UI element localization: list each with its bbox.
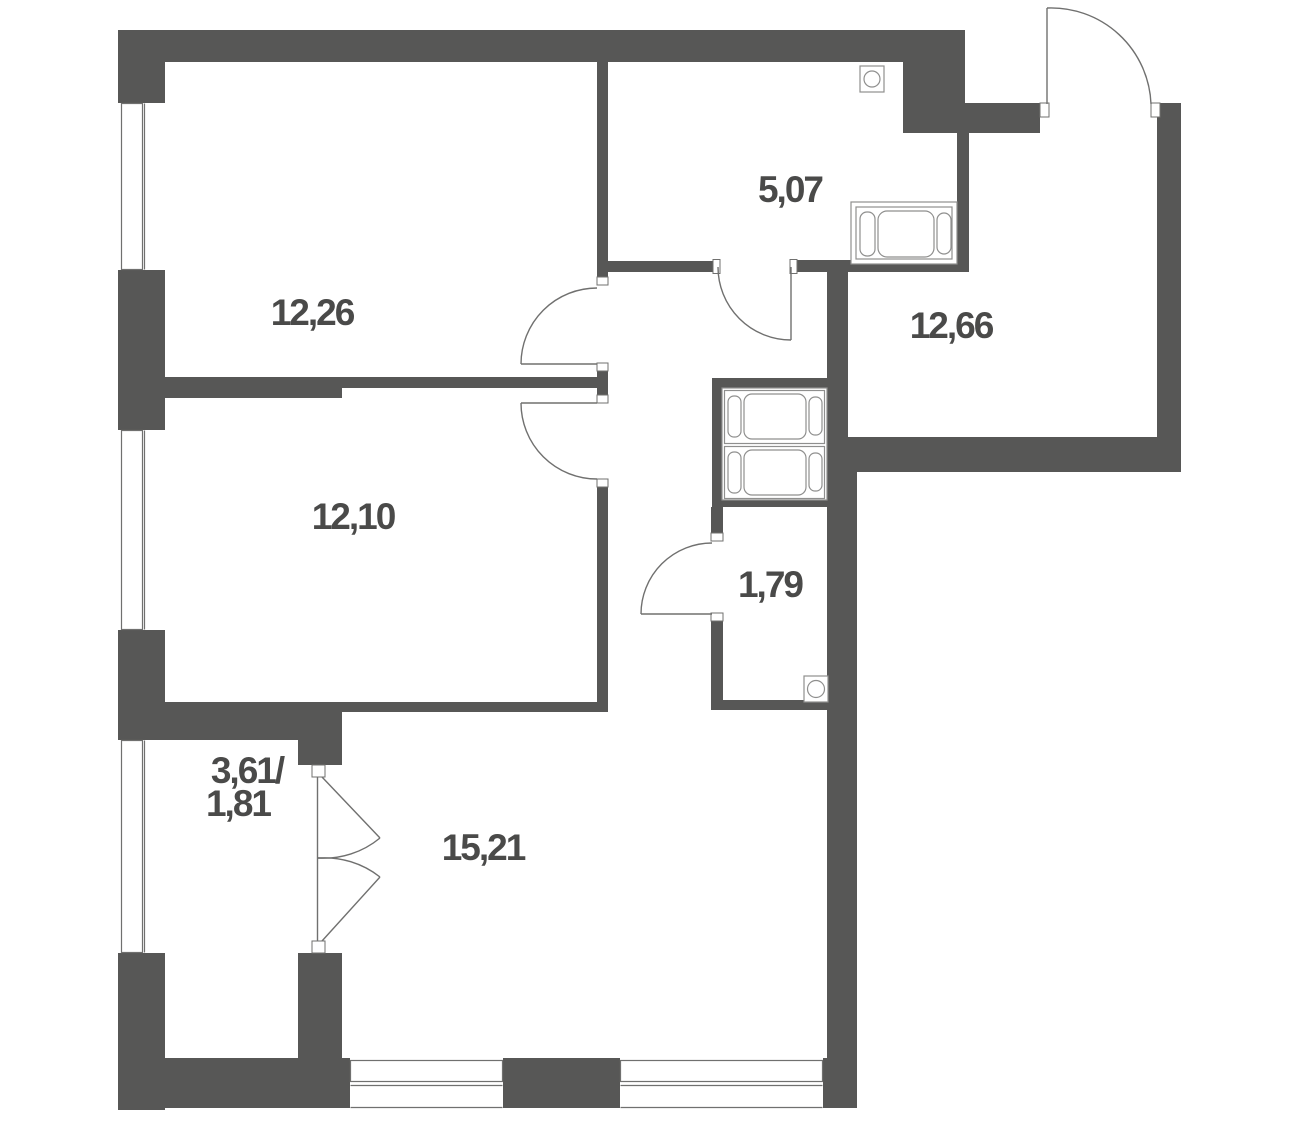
jamb-wc-top — [711, 533, 723, 541]
window-glazing — [621, 1061, 823, 1082]
window-glazing — [351, 1061, 503, 1082]
door-jambs — [312, 103, 1160, 953]
door-arc — [521, 403, 597, 479]
room-middle-left-door — [521, 403, 597, 479]
window-bottom-2 — [620, 1058, 823, 1108]
wall-left-pier-1 — [118, 270, 165, 430]
wc-sink — [804, 676, 828, 702]
bathtub-end-left — [860, 212, 875, 256]
window-glazing — [122, 104, 143, 270]
wall-wc-left-lower — [711, 621, 723, 710]
wall-living-top-thin — [342, 702, 607, 712]
label-wc: 1,79 — [738, 564, 803, 605]
washer-bottom-right — [809, 453, 822, 491]
washer-dryer-stack — [722, 388, 827, 500]
wall-bottom-left — [118, 1058, 350, 1108]
label-bathroom: 5,07 — [758, 169, 822, 210]
wall-top — [120, 30, 905, 62]
jamb-room2-bottom — [597, 479, 608, 487]
jamb-balcony-bottom — [312, 941, 325, 953]
wall-bathroom-right — [957, 132, 969, 272]
label-room-top-left: 12,26 — [271, 292, 355, 333]
door-arc — [641, 543, 712, 614]
door-arc-top — [318, 838, 380, 858]
wall-right — [1157, 103, 1181, 472]
wall-balcony-col-top — [298, 740, 342, 765]
jamb-room2-top — [597, 395, 608, 403]
floor-plan-page: 12,26 5,07 12,66 12,10 1,79 15,21 3,61/ … — [0, 0, 1301, 1121]
wall-corridor-vert-2 — [597, 371, 608, 395]
wall-divider-thick — [165, 388, 342, 398]
window-left-1 — [118, 103, 165, 270]
wall-balcony-col-bottom — [298, 953, 342, 1058]
wc-door — [641, 543, 712, 614]
wall-bottom-pier — [503, 1058, 620, 1108]
floor-plan: 12,26 5,07 12,66 12,10 1,79 15,21 3,61/ … — [0, 0, 1301, 1121]
washer-top-left — [728, 396, 741, 437]
window-balcony-glazing — [118, 740, 165, 953]
sink-bowl — [864, 71, 880, 87]
window-left-2 — [118, 430, 165, 630]
door-leaf-bottom — [322, 877, 380, 941]
jamb-entrance-right — [1151, 103, 1160, 117]
wall-right-lower — [827, 437, 857, 1108]
wall-divider-thin — [165, 377, 597, 388]
jamb-entrance-left — [1040, 103, 1049, 117]
jamb-wc-bottom — [711, 613, 723, 621]
wall-bathroom-bottom-left — [598, 261, 719, 272]
label-hallway: 12,66 — [910, 305, 994, 346]
label-living-room: 15,21 — [442, 827, 526, 868]
jamb-room1-bottom — [597, 363, 608, 371]
label-room-middle-left: 12,10 — [312, 496, 396, 537]
wall-corridor-vert-1 — [597, 62, 608, 277]
jamb-bathroom-left — [713, 260, 720, 274]
entrance-door — [1047, 8, 1151, 104]
washer-top-right — [809, 397, 822, 435]
wall-top-left-corner — [118, 30, 165, 103]
door-leaf-top — [322, 777, 380, 838]
label-balcony-line2: 1,81 — [206, 783, 271, 824]
wall-corridor-vert-3 — [597, 487, 608, 712]
balcony-double-door — [318, 777, 381, 941]
door-arc — [521, 288, 597, 364]
sink-bowl — [808, 681, 825, 698]
windows — [118, 103, 823, 1108]
bathtub-basin — [878, 211, 934, 257]
wall-balcony-band — [118, 702, 342, 740]
door-arc-bottom — [318, 858, 380, 877]
walls — [118, 30, 1181, 1110]
door-arc — [718, 267, 791, 340]
washer-top-body — [744, 394, 806, 439]
window-glazing — [122, 741, 143, 953]
room-top-left-door — [521, 288, 597, 364]
wall-entrance-left — [965, 103, 1040, 133]
washer-bottom-left — [728, 452, 741, 493]
bathroom-sink — [860, 66, 884, 92]
wall-wc-left-upper — [711, 507, 723, 533]
door-arc — [1047, 8, 1151, 104]
wall-hall-bottom — [827, 437, 1181, 472]
bathtub — [851, 202, 957, 264]
wall-above-niche — [827, 272, 848, 378]
bathroom-door — [718, 267, 791, 340]
wall-top-right-block — [903, 30, 965, 133]
window-glazing — [122, 431, 143, 630]
jamb-room1-top — [597, 277, 608, 285]
bathtub-end-right — [937, 213, 951, 254]
jamb-balcony-top — [312, 765, 325, 777]
window-bottom-1 — [350, 1058, 503, 1108]
washer-bottom-body — [744, 450, 806, 495]
